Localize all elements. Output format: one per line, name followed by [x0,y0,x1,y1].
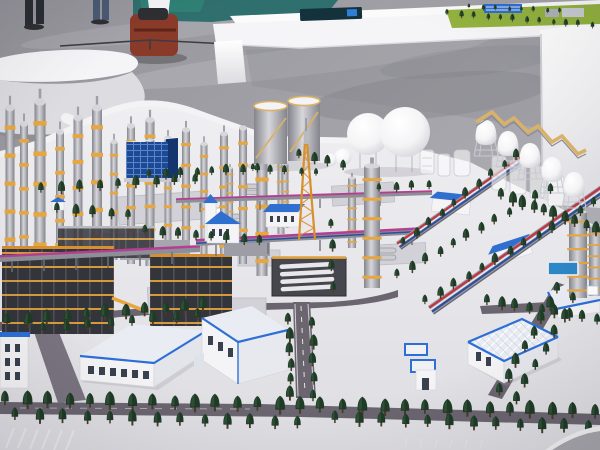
vignette [0,0,600,450]
scene-photo [0,0,600,450]
photo-stage: Exhibition photograph: scale model of a … [0,0,600,450]
